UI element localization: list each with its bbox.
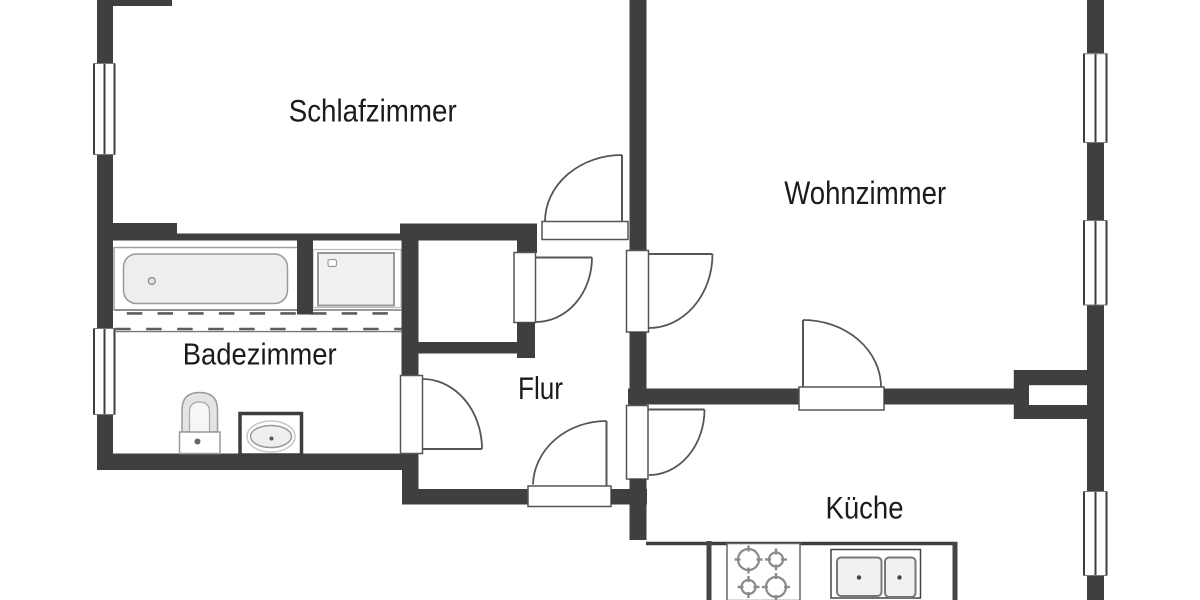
svg-text:Schlafzimmer: Schlafzimmer	[289, 93, 457, 129]
svg-text:Badezimmer: Badezimmer	[183, 338, 337, 372]
svg-text:Flur: Flur	[518, 370, 563, 406]
svg-text:Wohnzimmer: Wohnzimmer	[784, 175, 946, 211]
svg-text:Küche: Küche	[826, 490, 904, 526]
